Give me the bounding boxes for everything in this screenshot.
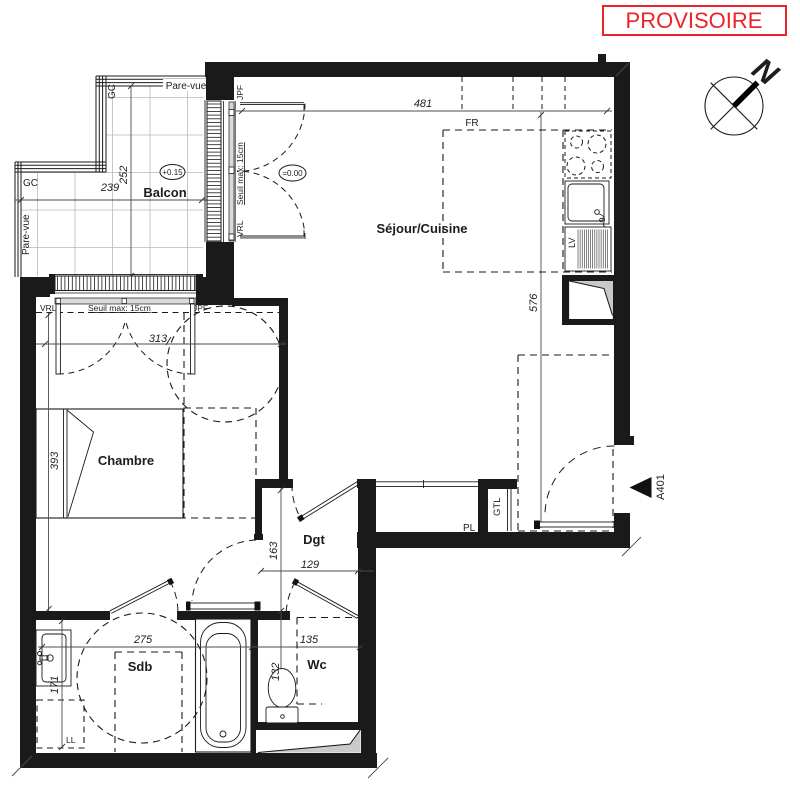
svg-text:VRL: VRL — [235, 220, 245, 237]
svg-text:LL: LL — [66, 735, 76, 745]
svg-text:393: 393 — [49, 451, 61, 470]
svg-text:Seuil max: 15cm: Seuil max: 15cm — [88, 303, 151, 313]
svg-text:313: 313 — [149, 333, 168, 345]
svg-text:481: 481 — [414, 98, 432, 110]
svg-text:576: 576 — [528, 293, 540, 312]
svg-text:PROVISOIRE: PROVISOIRE — [626, 8, 763, 33]
svg-text:275: 275 — [133, 634, 153, 646]
svg-text:132: 132 — [270, 663, 282, 681]
svg-text:Sdb: Sdb — [128, 659, 153, 674]
svg-text:Pare-vue: Pare-vue — [166, 81, 207, 92]
svg-text:252: 252 — [118, 166, 130, 185]
svg-text:Chambre: Chambre — [98, 453, 154, 468]
svg-text:Pare-vue: Pare-vue — [21, 214, 32, 255]
svg-text:FR: FR — [465, 118, 478, 129]
svg-text:JPF: JPF — [235, 85, 245, 100]
svg-text:GC: GC — [107, 84, 118, 99]
svg-text:PL: PL — [463, 523, 476, 534]
svg-text:135: 135 — [300, 634, 319, 646]
svg-text:+0.15: +0.15 — [162, 168, 183, 177]
svg-text:239: 239 — [100, 182, 119, 194]
svg-text:Séjour/Cuisine: Séjour/Cuisine — [376, 221, 467, 236]
svg-text:Balcon: Balcon — [143, 185, 186, 200]
svg-text:VRL: VRL — [40, 303, 57, 313]
svg-text:LV: LV — [567, 238, 577, 248]
svg-text:GTL: GTL — [492, 498, 503, 516]
svg-text:129: 129 — [301, 559, 319, 571]
svg-text:GC: GC — [23, 178, 38, 189]
svg-text:Wc: Wc — [307, 657, 327, 672]
svg-text:Dgt: Dgt — [303, 532, 325, 547]
svg-text:Seuil max: 15cm: Seuil max: 15cm — [235, 142, 245, 205]
svg-text:=0.00: =0.00 — [282, 169, 303, 178]
svg-text:171: 171 — [49, 676, 61, 694]
svg-text:163: 163 — [268, 541, 280, 560]
svg-text:A401: A401 — [655, 474, 667, 500]
